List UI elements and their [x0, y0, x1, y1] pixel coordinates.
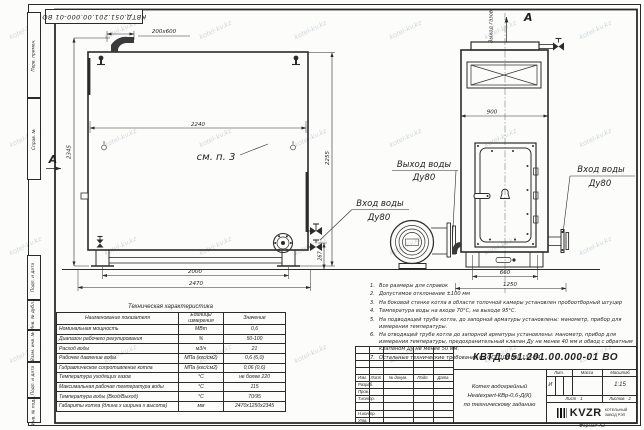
- dim-660: 660: [500, 270, 511, 276]
- product-name: Котел водогрейный Heatexpert-КВр-0,6-Д(К…: [453, 369, 546, 424]
- tb-scale-value: 1:15: [602, 376, 638, 395]
- table-row: Диапазон рабочего регулирования%50-100: [57, 334, 286, 344]
- margin-box-podp-data-2: Подп. и дата: [27, 362, 41, 398]
- top-stamp-number: КВТД.051.201.00.000-01 ВО: [42, 13, 146, 21]
- doc-number: КВТД.051.201.00.000-01 ВО: [453, 347, 638, 370]
- table-row: Номинальная мощностьМВт0,6: [57, 325, 286, 335]
- dim-2255: 2255: [325, 151, 331, 165]
- tech-col-value: Значение: [224, 313, 286, 325]
- lifting-eye-right: [292, 56, 300, 65]
- burner-fan: [391, 221, 462, 269]
- tb-lit-value: И: [546, 376, 555, 395]
- tb-lit-header: Лит.: [546, 369, 572, 376]
- see-note-label: см. п. 3: [197, 152, 236, 163]
- section-a-left: А: [48, 153, 58, 166]
- front-view: Выход газов А 900: [391, 10, 569, 293]
- note-item: 4.Температура воды на входе 70°С, на вых…: [370, 308, 637, 315]
- margin-box-inv-podl: Инв. № подл.: [27, 398, 41, 423]
- top-reference-stamp: КВТД.051.201.00.000-01 ВО: [45, 9, 143, 24]
- water-inlet-side-label: Вход воды: [356, 199, 404, 209]
- table-row: Рабочее давление водыМПа (кгс/см2)0,6 (6…: [57, 353, 286, 363]
- company-logo: KVZR КОТЕЛЬНЫЙ ЗАВОД РЭП: [546, 402, 638, 424]
- tb-row-tkontr: Т.контр.: [356, 395, 383, 402]
- tb-row-utv: Утв.: [356, 417, 383, 424]
- water-inlet-front-label: Вход воды: [577, 165, 625, 175]
- table-row: Максимальная рабочая температура воды°С1…: [57, 382, 286, 392]
- flue-elbow: [111, 37, 134, 52]
- side-view: 200х600 2240 см. п. 3: [46, 29, 335, 291]
- logo-bars-icon: [557, 408, 567, 418]
- note-item: 5.На подводящей трубе котла, до запорной…: [370, 317, 637, 331]
- margin-box-sprav: Справ. №: [27, 98, 41, 180]
- water-inlet-front-dn: Ду80: [588, 179, 612, 189]
- tb-sheets: Листов2: [602, 395, 638, 402]
- table-row: Габариты котла (длина х ширина х высота)…: [57, 401, 286, 411]
- tb-sheet: Лист1: [546, 395, 602, 402]
- gas-outlet-label: Выход газов: [489, 10, 495, 43]
- table-row: Гидравлическое сопротивление котлаМПа (к…: [57, 363, 286, 373]
- tech-characteristics-table: Техническая характеристика Наименование …: [56, 304, 285, 412]
- table-row: Расход водым3/ч21: [57, 344, 286, 354]
- tb-col-list: Лист: [369, 374, 383, 381]
- tb-row-nkontr: Н.контр.: [356, 410, 383, 417]
- tech-table-title: Техническая характеристика: [56, 304, 285, 310]
- dim-900: 900: [487, 110, 498, 116]
- dim-2240: 2240: [191, 122, 205, 128]
- dim-2470: 2470: [189, 281, 203, 287]
- format-note: Формат А3: [548, 424, 636, 429]
- tech-col-units: Единицы измерения: [179, 313, 224, 325]
- tb-row-razrab: Разраб.: [356, 381, 383, 388]
- lifting-eye-left: [97, 56, 105, 65]
- note-item: 3.На боковой стенке котла в области топо…: [370, 300, 637, 307]
- tb-col-docnum: № докум.: [383, 374, 413, 381]
- water-outlet-dn: Ду80: [412, 173, 436, 183]
- water-outlet-label: Выход воды: [397, 160, 451, 170]
- tb-col-izm: Изм.: [356, 374, 369, 381]
- margin-box-perv-primen: Перв. примен.: [27, 12, 41, 98]
- dim-2345: 2345: [67, 145, 73, 159]
- logo-text: KVZR: [570, 407, 602, 419]
- table-row: Температура воды (Вход/Выход)°С70/95: [57, 392, 286, 402]
- furnace-door: [474, 143, 538, 247]
- callouts: Выход воды Ду80 Вход воды Ду80 Вход воды…: [320, 160, 635, 240]
- table-row: Температура уходящих газов°Сне более 220: [57, 373, 286, 383]
- tech-col-name: Наименование показателя: [57, 313, 179, 325]
- margin-box-podp-data-1: Подп. и дата: [27, 255, 41, 300]
- water-inlet-side-dn: Ду80: [367, 213, 391, 223]
- inlet-valves-side: [308, 224, 322, 251]
- section-a-right: А: [523, 11, 533, 24]
- tb-mass-header: Масса: [572, 369, 602, 376]
- tb-col-data: Дата: [433, 374, 453, 381]
- drawing-sheet: kotel-kv.kzkotel-kv.kzkotel-kv.kzkotel-k…: [0, 0, 644, 430]
- drain-valve: [97, 237, 104, 248]
- company-name: КОТЕЛЬНЫЙ ЗАВОД РЭП: [605, 408, 628, 417]
- note-item: 2.Допустимое отклонение ±100 мм: [370, 291, 637, 298]
- dim-267: 267: [318, 250, 324, 260]
- tb-row-prov: Пров.: [356, 388, 383, 395]
- title-block: Изм. Лист № докум. Подп. Дата Разраб. Пр…: [355, 346, 637, 424]
- flue-dim-label: 200х600: [152, 29, 177, 35]
- tb-scale-header: Масштаб: [602, 369, 638, 376]
- note-item: 1.Все размеры для справок: [370, 283, 637, 290]
- tb-col-podp: Подп.: [413, 374, 433, 381]
- margin-box-vzam-inv: Взам. инв. №: [27, 330, 41, 362]
- water-flange-front-right: [548, 230, 569, 253]
- margin-box-inv-dubl: Инв. № дубл.: [27, 300, 41, 330]
